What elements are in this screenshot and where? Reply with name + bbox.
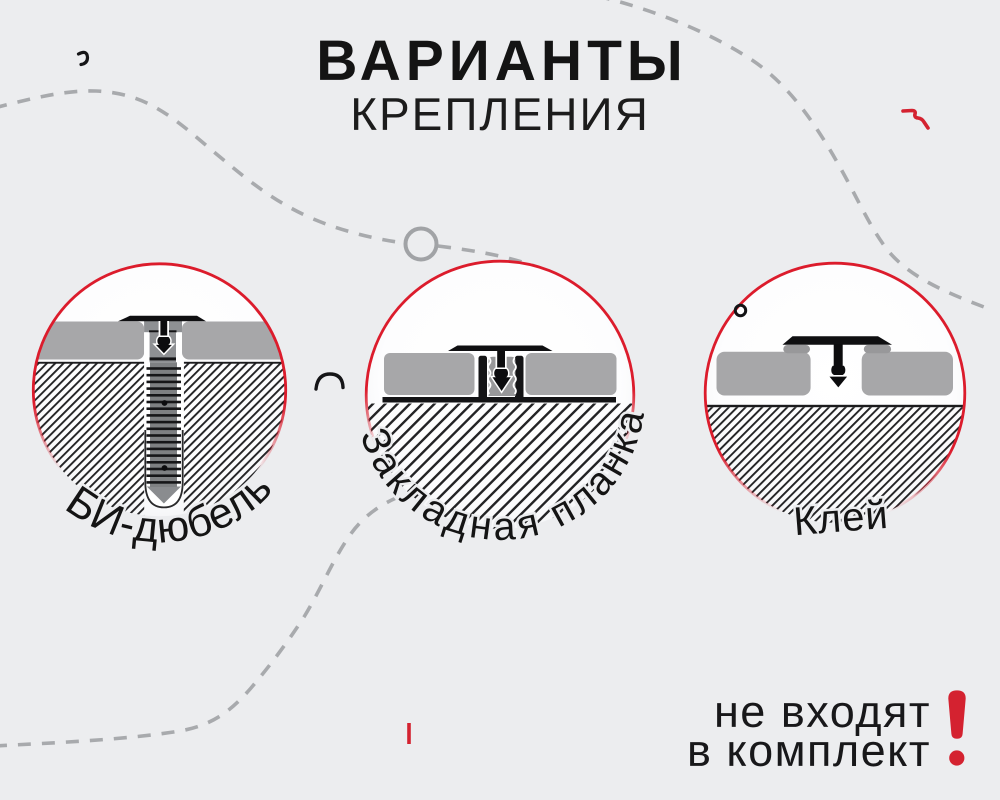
svg-text:Клей: Клей [792, 493, 890, 544]
svg-text:ВАРИАНТЫ: ВАРИАНТЫ [316, 29, 687, 93]
svg-text:в комплект: в комплект [687, 725, 931, 776]
svg-text:КРЕПЛЕНИЯ: КРЕПЛЕНИЯ [350, 88, 650, 140]
